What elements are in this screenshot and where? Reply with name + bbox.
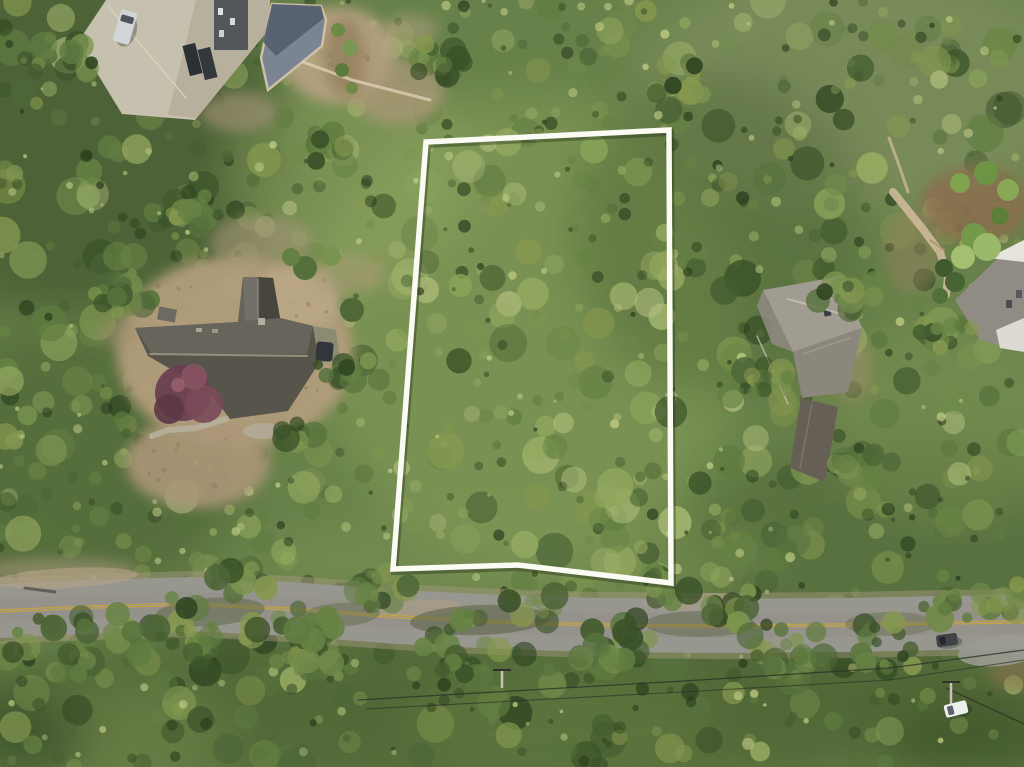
aerial-photo-canvas bbox=[0, 0, 1024, 767]
aerial-photo bbox=[0, 0, 1024, 767]
house-left-roof bbox=[243, 277, 258, 321]
